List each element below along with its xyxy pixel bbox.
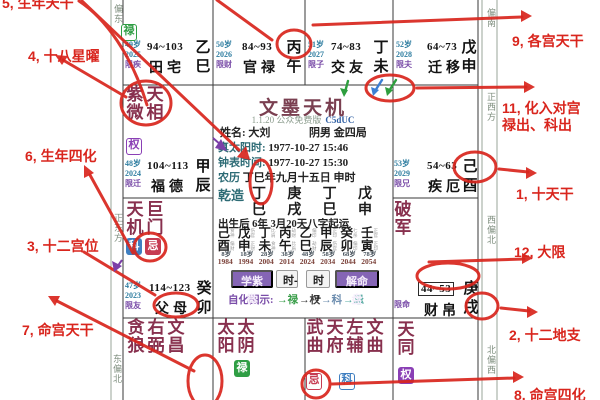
decade-range: 74~83	[331, 41, 361, 53]
palace-name: 官禄	[243, 57, 279, 77]
flow-year-info: 48岁2024限迁	[125, 159, 141, 189]
arrowhead-9	[521, 10, 532, 22]
decade-range: 54~63	[427, 160, 457, 172]
decade-range: 94~103	[147, 41, 183, 53]
stem-branch: 庚戌	[462, 280, 480, 318]
gender-bureau: 阴男 金四局	[309, 124, 367, 140]
compass-south-label: 偏南	[485, 8, 498, 28]
star-names-ziwei-tianxiang: 紫微天相	[126, 86, 164, 122]
hua-lu-badge: 禄	[234, 360, 250, 377]
stem-branch: 丙午	[285, 39, 303, 77]
lu-out-arrowhead-2	[385, 87, 393, 96]
arrowhead-6	[84, 165, 94, 178]
learn-ziwei-button[interactable]: 学紫微	[231, 270, 273, 288]
annotation-2-twelve-branches: 2, 十二地支	[509, 325, 581, 345]
ziwei-chart-screenshot: 偏东 正东方 东偏北 偏南 正西方 西偏北 北偏西 禄 49岁2025限疾 94…	[0, 0, 600, 400]
decade-range: 84~93	[242, 41, 272, 53]
hour-plus-button[interactable]: 时+	[306, 270, 330, 288]
star-names-tianji-jumen: 天机巨门	[126, 201, 164, 237]
clock-time: 钟表时间: 1977-10-27 15:30	[218, 154, 348, 170]
arrowhead-11	[524, 81, 535, 93]
compass-east-label: 偏东	[112, 4, 125, 24]
quan-arrowhead-mao	[112, 261, 122, 272]
annotation-4-eighteen-stars: 4, 十八星曜	[28, 46, 100, 66]
flow-year-info: 47岁2023限友	[125, 281, 141, 311]
palace-name: 田宅	[149, 57, 185, 77]
arrowhead-2	[527, 306, 538, 318]
annotation-6-birth-sihua: 6, 生年四化	[25, 146, 97, 166]
star-names-wuqu-tianfu-zuofu-wenqu: 武曲天府左辅文曲	[306, 319, 384, 355]
decade-range: 104~113	[147, 160, 189, 172]
decade-life-label: 限命	[394, 300, 410, 310]
hua-lu-outline-badge: 禄	[121, 24, 137, 41]
compass-west-north-label: 西偏北	[485, 215, 498, 245]
hour-minus-button[interactable]: 时-	[276, 270, 298, 288]
decade-range: 64~73	[427, 41, 457, 53]
hua-ji-badge: 忌	[145, 238, 161, 255]
annotation-11-line2: 禄出、科出	[502, 115, 572, 135]
arrowhead-1	[526, 167, 537, 179]
hua-quan-outline-badge: 权	[126, 138, 142, 155]
annotation-3-twelve-palaces: 3, 十二宫位	[27, 236, 99, 256]
arrowhead-8	[513, 371, 524, 383]
flow-year-info: 50岁2026限财	[216, 40, 232, 70]
star-names-tiantong: 天同	[397, 321, 415, 357]
hua-ji-outline-badge: 忌	[306, 373, 322, 390]
dayun-years: 19841994200420142024203420442054	[215, 258, 379, 266]
annotation-9-palace-stems: 9, 各宫天干	[512, 31, 584, 51]
stem-branch: 甲辰	[194, 158, 212, 196]
hua-quan-badge: 权	[398, 367, 414, 384]
stem-branch: 乙巳	[194, 39, 212, 77]
flow-year-info: 49岁2025限疾	[125, 40, 141, 70]
flow-year-info: 51岁2027限子	[308, 40, 324, 70]
compass-east-north-label: 东偏北	[111, 354, 124, 384]
person-name: 姓名: 大刘	[220, 124, 270, 140]
palace-name: 疾厄	[428, 176, 464, 196]
palace-name: 迁移	[428, 57, 464, 77]
flow-year-info: 53岁2029限兄	[394, 159, 410, 189]
arrow-line-1	[499, 169, 528, 172]
ke-out-arrowhead	[371, 87, 379, 96]
qianzao-label: 乾造	[218, 185, 244, 204]
star-names-pojun: 破军	[394, 201, 412, 237]
stem-branch: 癸卯	[195, 280, 213, 318]
stem-branch: 戊申	[460, 39, 478, 77]
hua-ke-outline-badge: 科	[339, 373, 355, 390]
compass-due-west-label: 正西方	[485, 92, 498, 122]
arrowhead-7	[48, 296, 60, 306]
decade-range-current: 44~53	[418, 282, 454, 296]
decade-range: 114~123	[149, 282, 191, 294]
palace-name: 交友	[331, 57, 367, 77]
star-names-taiyang-taiyin: 太阳太阴	[217, 319, 255, 355]
compass-north-west-label: 北偏西	[485, 345, 498, 375]
arrow-line-2	[501, 308, 529, 311]
flow-year-info: 52岁2028限夫	[396, 40, 412, 70]
interpret-chart-button[interactable]: 解命盘	[335, 270, 379, 288]
compass-due-east-label: 正东方	[112, 213, 125, 243]
stem-branch: 己酉	[461, 158, 479, 196]
quan-arrow-tail-mao	[117, 260, 122, 267]
palace-name: 财帛	[424, 300, 460, 320]
stem-branch: 丁未	[372, 39, 390, 77]
annotation-5-birth-year-stem: 5, 生年天干	[2, 0, 74, 13]
annotation-12-decade-limit: 12, 大限	[514, 242, 565, 262]
annotation-1-ten-stems: 1, 十天干	[516, 184, 574, 204]
palace-name: 父母	[155, 298, 191, 318]
hua-ke-badge: 科	[126, 238, 142, 255]
palace-name: 福德	[151, 176, 187, 196]
annotation-7-life-palace-stem: 7, 命宫天干	[22, 320, 94, 340]
annotation-8-life-palace-sihua: 8, 命宫四化	[514, 385, 586, 400]
star-names-tanlang-youbi-wenchang: 贪狼右弼文昌	[127, 319, 185, 355]
true-solar-time: 真太阳时: 1977-10-27 15:46	[218, 139, 348, 155]
